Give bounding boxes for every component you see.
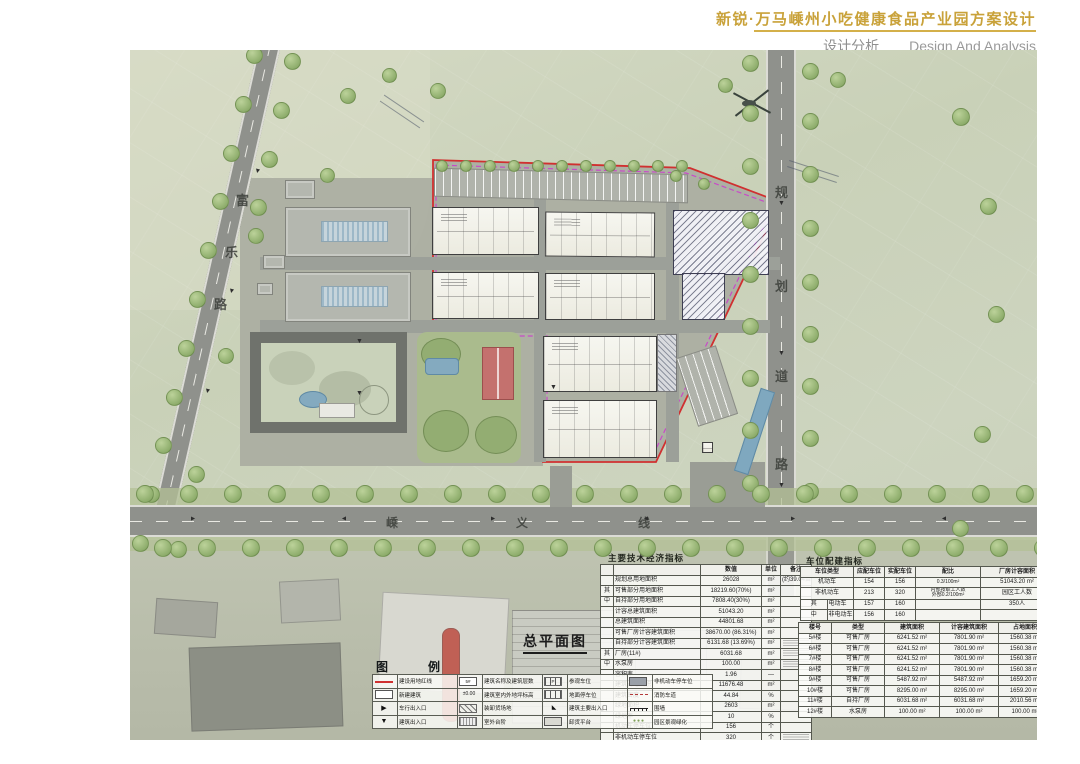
level-icon: ±0.00 — [459, 690, 479, 699]
existing-block-a — [285, 180, 315, 199]
traffic-arrow: ▼ — [642, 515, 649, 522]
tree — [488, 485, 506, 503]
steps-icon — [459, 717, 477, 726]
road-name-char: 路 — [775, 454, 788, 473]
tree — [400, 485, 418, 503]
road-name-char: 规 — [775, 182, 788, 201]
wall-icon — [629, 704, 649, 713]
tree — [248, 228, 264, 244]
table-row: 可售厂房计容建筑面积38670.00 (86.31%)m² — [601, 628, 812, 639]
table-row: 中自持部分用地面积7808.40(30%)m² — [601, 596, 812, 607]
tree — [330, 539, 348, 557]
tree — [312, 485, 330, 503]
tri-down-icon: ▼ — [374, 717, 394, 726]
tree — [218, 348, 234, 364]
building-8 — [545, 273, 655, 320]
central-park — [417, 332, 521, 463]
table-row: 其厂房(11#)6031.68m² — [601, 649, 812, 660]
door-icon: ◣ — [544, 704, 564, 713]
table-row: 自持部分计容建筑面积6131.68 (13.69%)m² — [601, 638, 812, 649]
tree — [580, 160, 592, 172]
existing-block-c — [257, 283, 273, 295]
tree — [988, 306, 1005, 323]
tree — [154, 539, 172, 557]
tree — [698, 178, 710, 190]
tree — [198, 539, 216, 557]
road-name-char: 乐 — [225, 242, 238, 261]
bike-parking — [657, 334, 677, 392]
table-row: 10#楼可售厂房8295.00 m²8295.00 m²1659.20 m² — [799, 686, 1038, 697]
traffic-arrow: ▼ — [356, 338, 363, 345]
tree — [742, 212, 759, 229]
traffic-arrow: ▼ — [778, 482, 785, 489]
tree — [604, 160, 616, 172]
traffic-arrow: ▼ — [778, 200, 785, 207]
tree — [223, 145, 240, 162]
table-row: 机动车1541560.3/100m²51043.20 m² — [801, 577, 1038, 588]
plan-sheet-label: 总平面图 — [523, 631, 587, 654]
tree — [840, 485, 858, 503]
tree — [802, 430, 819, 447]
tree — [620, 485, 638, 503]
tree — [189, 291, 206, 308]
traffic-arrow: ▼ — [940, 515, 947, 522]
tree — [802, 326, 819, 343]
table-row: 计容总建筑面积51043.20m² — [601, 607, 812, 618]
tree — [532, 160, 544, 172]
tree — [132, 535, 149, 552]
existing-warehouse-2 — [285, 272, 411, 322]
traffic-arrow: ▼ — [356, 390, 363, 397]
table-row: 9#楼可售厂房5487.92 m²5487.92 m²1659.20 m² — [799, 675, 1038, 686]
hatch-icon — [459, 704, 477, 713]
tree — [858, 539, 876, 557]
existing-block-b — [263, 255, 285, 269]
table-row: 7#楼可售厂房6241.52 m²7801.90 m²1560.38 m² — [799, 654, 1038, 665]
tree — [952, 108, 970, 126]
tree — [742, 158, 759, 175]
building-11-wing — [682, 273, 725, 320]
table-row: 其电动车157160350人 — [801, 599, 1038, 610]
courtyard-building — [250, 332, 407, 433]
tree — [356, 485, 374, 503]
tree — [952, 520, 969, 537]
tree — [718, 78, 733, 93]
tree — [902, 539, 920, 557]
tree — [273, 102, 290, 119]
road-south — [130, 505, 1037, 537]
tree — [576, 485, 594, 503]
traffic-arrow: ▼ — [550, 384, 557, 391]
tree — [628, 160, 640, 172]
tree — [484, 160, 496, 172]
circles-icon: ●●● — [629, 717, 649, 726]
traffic-arrow: ▼ — [790, 515, 797, 522]
building-6 — [545, 212, 655, 258]
tree — [320, 168, 335, 183]
legend-row: 新建建筑±0.00建筑室内外地坪标高地面停车位消防车道 — [373, 688, 713, 702]
tree — [436, 160, 448, 172]
tree — [444, 485, 462, 503]
tree — [268, 485, 286, 503]
tree — [802, 166, 819, 183]
table-row: 总建筑面积44801.68m² — [601, 617, 812, 628]
arrow-right-icon: ▶ — [374, 704, 394, 713]
building-12-pump-house — [702, 442, 713, 453]
table-row: 中水泵房100.00m² — [601, 659, 812, 670]
tree — [752, 485, 770, 503]
tree — [462, 539, 480, 557]
stall-icon — [544, 690, 562, 699]
tree — [814, 539, 832, 557]
tree — [972, 485, 990, 503]
tree — [946, 539, 964, 557]
header-gold-rule — [754, 30, 1036, 32]
building-10 — [543, 400, 657, 458]
legend-title: 图 例 — [376, 658, 454, 675]
tree — [830, 72, 846, 88]
tree — [235, 96, 252, 113]
dark-icon — [629, 677, 647, 686]
tree — [802, 378, 819, 395]
tree — [742, 318, 759, 335]
tree — [178, 340, 195, 357]
parking-table: 车位类型应配车位实配车位配比厂房计容面积机动车1541560.3/100m²51… — [800, 566, 1037, 621]
project-title: 新锐·万马嵊州小吃健康食品产业园方案设计 — [716, 8, 1036, 29]
table-row: 中非电动车156160 — [801, 610, 1038, 621]
tree — [770, 539, 788, 557]
tree — [418, 539, 436, 557]
tree — [508, 160, 520, 172]
building-9 — [543, 336, 657, 392]
road-name-char: 划 — [775, 276, 788, 295]
south-spur — [550, 466, 572, 507]
tree — [928, 485, 946, 503]
table-row: 非机动车停车位320个 — [601, 733, 812, 741]
tree — [188, 466, 205, 483]
tree — [990, 539, 1008, 557]
tree — [884, 485, 902, 503]
tree — [742, 105, 759, 122]
road-name-char: 富 — [236, 190, 249, 209]
dock-icon — [544, 717, 562, 726]
tree — [170, 541, 187, 558]
existing-warehouse-1 — [285, 207, 411, 257]
tree — [224, 485, 242, 503]
tree — [742, 266, 759, 283]
table-row: 8#楼可售厂房6241.52 m²7801.90 m²1560.38 m² — [799, 665, 1038, 676]
tree — [664, 485, 682, 503]
stall-p-icon: P — [544, 677, 562, 686]
tree — [670, 170, 682, 182]
tree — [286, 539, 304, 557]
label-box-icon: 5# — [459, 677, 477, 686]
table-row: 11#楼自持厂房6031.68 m²6031.68 m²2010.56 m² — [799, 696, 1038, 707]
tree — [638, 539, 656, 557]
tree — [550, 539, 568, 557]
tree — [242, 539, 260, 557]
road-name-char: 嵊 — [386, 514, 398, 531]
table-row: 5#楼可售厂房6241.52 m²7801.90 m²1560.38 m² — [799, 633, 1038, 644]
road-name-char: 道 — [775, 366, 788, 385]
tree — [284, 53, 301, 70]
table-row: 6#楼可售厂房6241.52 m²7801.90 m²1560.38 m² — [799, 644, 1038, 655]
building-area-table: 楼号类型建筑面积计容建筑面积占地面积5#楼可售厂房6241.52 m²7801.… — [798, 622, 1037, 718]
tree — [652, 160, 664, 172]
tree — [726, 539, 744, 557]
red-line-icon — [374, 677, 394, 686]
legend-row: ▶车行出入口装卸货场地◣建筑主要出入口围墙 — [373, 702, 713, 716]
traffic-arrow: ▼ — [190, 515, 197, 522]
tree — [261, 151, 278, 168]
traffic-arrow: ▼ — [340, 515, 347, 522]
traffic-arrow: ▼ — [490, 515, 497, 522]
tree — [1016, 485, 1034, 503]
tree — [708, 485, 726, 503]
tree — [742, 370, 759, 387]
legend-row: ▼建筑出入口室外台阶卸货平台●●●园区景观绿化 — [373, 715, 713, 729]
tree — [180, 485, 198, 503]
site-plan-canvas: 总平面图 主要技术经济指标 数值单位备注规划总用地面积26028m²(约39.0… — [130, 50, 1037, 740]
tree — [136, 485, 154, 503]
tree — [974, 426, 991, 443]
building-5 — [432, 207, 539, 255]
road-name-char: 义 — [516, 514, 528, 531]
tree — [532, 485, 550, 503]
tree — [430, 83, 446, 99]
tree — [742, 422, 759, 439]
table-row: 非机动车213320内部按职工人数外部0.2/100m²园区工人数 — [801, 588, 1038, 600]
tree — [594, 539, 612, 557]
basketball-court — [482, 347, 514, 400]
tree — [742, 55, 759, 72]
legend-table: 建设用地红线5#建筑名称及建筑层数P参观车位非机动车停车位新建建筑±0.00建筑… — [372, 674, 713, 729]
legend-row: 建设用地红线5#建筑名称及建筑层数P参观车位非机动车停车位 — [373, 675, 713, 689]
table-row: 12#楼水泵房100.00 m²100.00 m²100.00 m² — [799, 707, 1038, 718]
tree — [802, 274, 819, 291]
tree — [460, 160, 472, 172]
table-row: 规划总用地面积26028m²(约39.04亩) — [601, 575, 812, 586]
tree — [340, 88, 356, 104]
tree — [802, 63, 819, 80]
white-box-icon — [375, 690, 393, 699]
tree — [796, 485, 814, 503]
tree — [166, 389, 183, 406]
tree — [506, 539, 524, 557]
tree — [382, 68, 397, 83]
tree — [682, 539, 700, 557]
tree — [980, 198, 997, 215]
tree — [802, 113, 819, 130]
dashed-icon — [629, 690, 649, 699]
traffic-arrow: ▼ — [778, 350, 785, 357]
tree — [556, 160, 568, 172]
slide-page: 新锐·万马嵊州小吃健康食品产业园方案设计 设计分析Design And Anal… — [0, 0, 1080, 764]
road-name-char: 路 — [214, 294, 227, 313]
tree — [374, 539, 392, 557]
building-7 — [432, 272, 539, 319]
table-row: 其可售部分用地面积18219.60(70%)m² — [601, 586, 812, 597]
tree — [802, 220, 819, 237]
